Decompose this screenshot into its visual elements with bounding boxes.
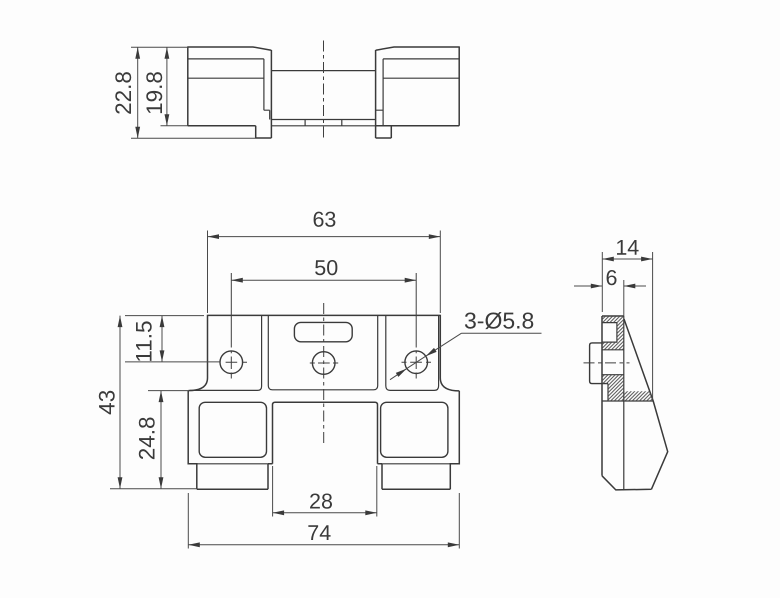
svg-text:74: 74 bbox=[307, 521, 331, 545]
svg-text:22.8: 22.8 bbox=[111, 71, 136, 115]
svg-text:3-Ø5.8: 3-Ø5.8 bbox=[464, 308, 534, 334]
svg-text:63: 63 bbox=[312, 208, 336, 232]
svg-text:6: 6 bbox=[606, 266, 618, 290]
svg-text:19.8: 19.8 bbox=[142, 71, 167, 115]
svg-text:50: 50 bbox=[314, 256, 338, 280]
svg-text:28: 28 bbox=[309, 489, 333, 513]
svg-text:14: 14 bbox=[615, 236, 639, 260]
svg-text:43: 43 bbox=[95, 390, 120, 415]
svg-text:24.8: 24.8 bbox=[135, 417, 160, 461]
svg-text:11.5: 11.5 bbox=[132, 320, 157, 362]
